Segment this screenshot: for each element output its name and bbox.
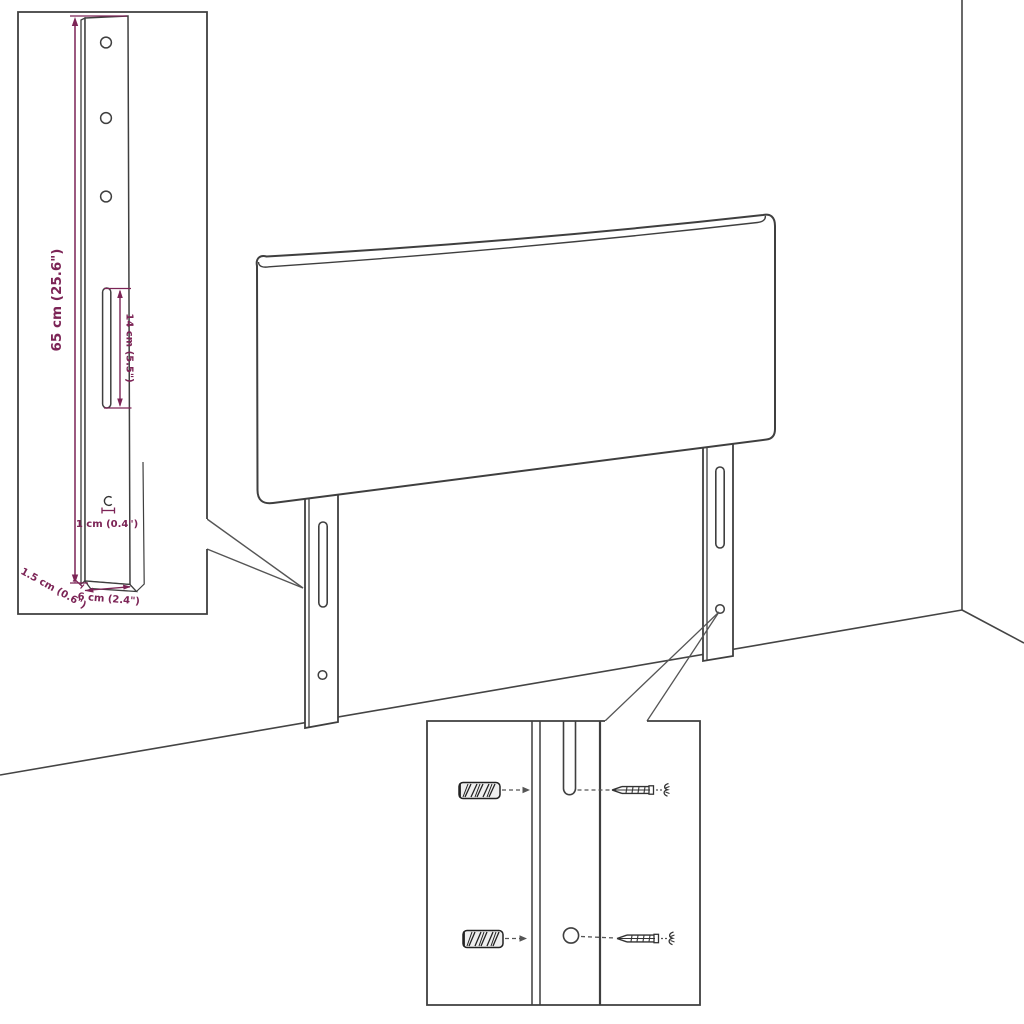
- left-leg-hole: [318, 671, 327, 680]
- leg-detail-inset: 65 cm (25.6") 14 cm (5.5") 1 cm (0.4") 1…: [18, 12, 207, 614]
- dimension-label-hole-diameter: 1 cm (0.4"): [76, 519, 138, 530]
- screws-detail-inset: [427, 721, 700, 1005]
- left-leg-slot: [319, 522, 327, 607]
- diagram-svg: 65 cm (25.6") 14 cm (5.5") 1 cm (0.4") 1…: [0, 0, 1024, 1024]
- callout-lines-left-inset: [207, 519, 303, 588]
- assembly-diagram-canvas: 65 cm (25.6") 14 cm (5.5") 1 cm (0.4") 1…: [0, 0, 1024, 1024]
- bracket-hole-2: [101, 113, 112, 124]
- bracket-slot: [103, 288, 111, 408]
- wall-plug-bottom: [463, 931, 503, 948]
- dimension-label-slot-length: 14 cm (5.5"): [124, 313, 135, 382]
- right-leg: [703, 418, 733, 661]
- floor-line-right: [962, 610, 1024, 643]
- headboard-outline: [257, 215, 775, 504]
- right-leg-slot: [716, 467, 724, 548]
- wall-plug-top: [459, 783, 500, 799]
- dimension-label-leg-height: 65 cm (25.6"): [49, 249, 65, 352]
- bracket-hole-3: [101, 191, 112, 202]
- callout-lines-bottom-inset: [605, 612, 719, 721]
- headboard-panel: [257, 215, 775, 504]
- bracket-hole-1: [101, 37, 112, 48]
- right-leg-hole: [716, 605, 725, 614]
